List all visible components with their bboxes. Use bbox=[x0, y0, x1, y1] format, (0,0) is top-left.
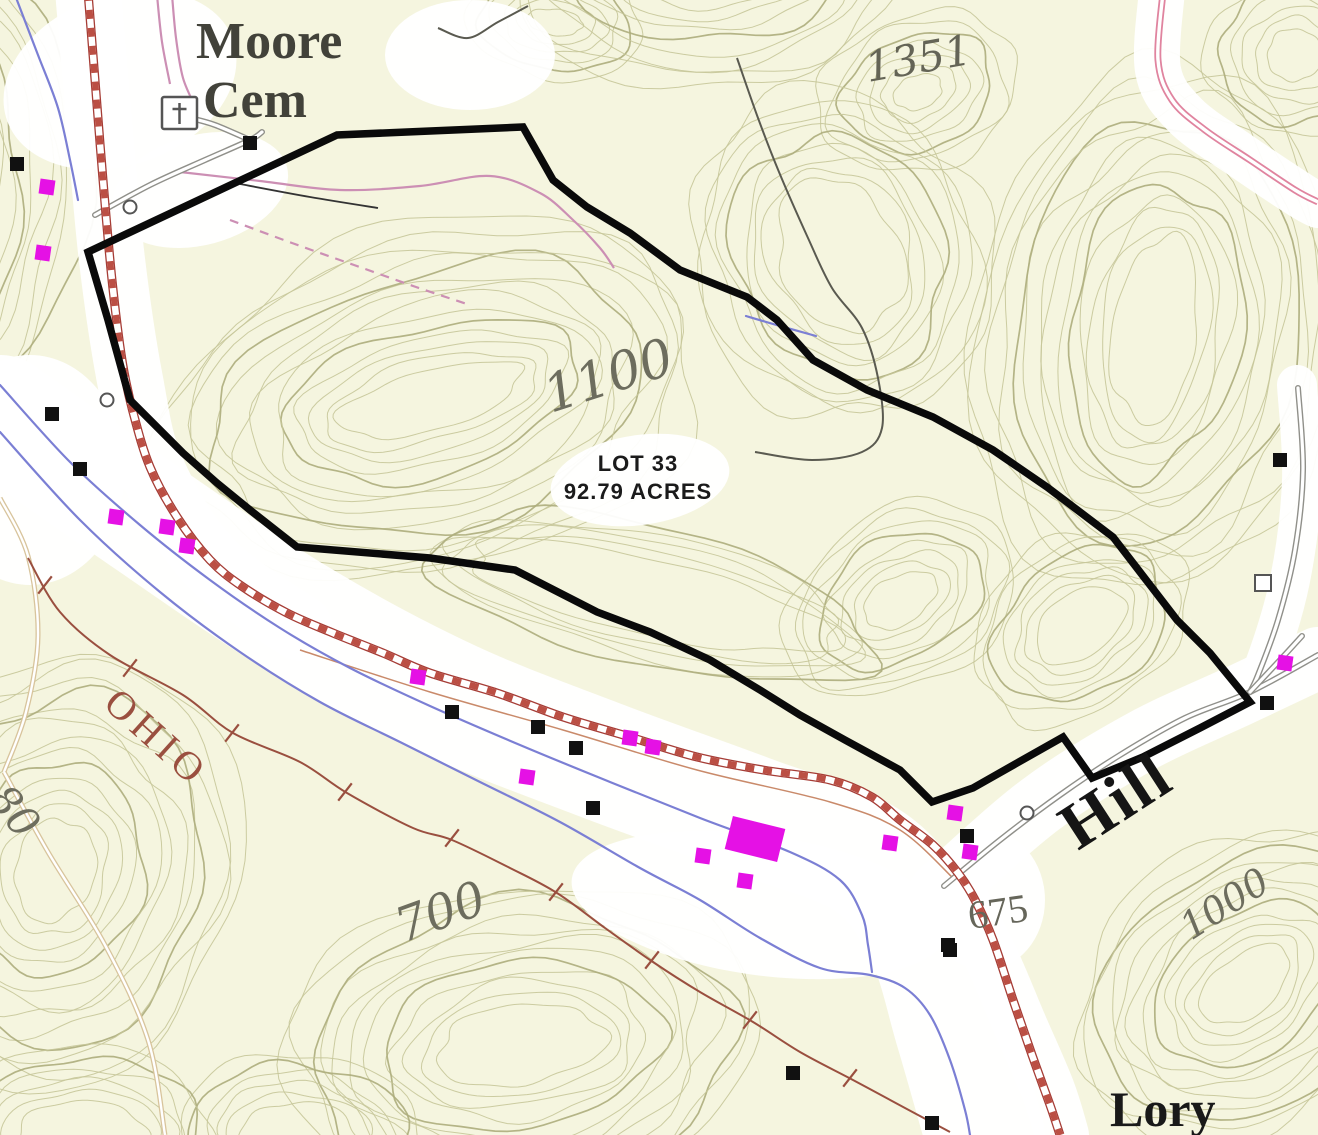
building-magenta bbox=[962, 844, 979, 861]
well-spring-symbol bbox=[1021, 807, 1034, 820]
building-black bbox=[531, 720, 545, 734]
label-spot-675: 675 bbox=[965, 885, 1031, 938]
building-magenta bbox=[35, 245, 52, 262]
building-magenta bbox=[519, 769, 536, 786]
building-magenta bbox=[410, 669, 427, 686]
label-moore-cem-2: Cem bbox=[203, 72, 307, 129]
building-outlined bbox=[1255, 575, 1271, 591]
building-magenta bbox=[108, 509, 125, 526]
building-black bbox=[243, 136, 257, 150]
building-black bbox=[786, 1066, 800, 1080]
building-black bbox=[10, 157, 24, 171]
well-spring-symbol bbox=[101, 394, 114, 407]
building-magenta bbox=[947, 805, 964, 822]
label-lory: Lory bbox=[1110, 1081, 1216, 1135]
building-black bbox=[1260, 696, 1274, 710]
building-black bbox=[73, 462, 87, 476]
building-magenta bbox=[622, 730, 639, 747]
building-magenta bbox=[39, 179, 56, 196]
building-magenta bbox=[645, 739, 662, 756]
building-black bbox=[960, 829, 974, 843]
building-magenta bbox=[1277, 655, 1294, 672]
building-magenta bbox=[737, 873, 754, 890]
well-spring-symbol bbox=[124, 201, 137, 214]
building-black bbox=[445, 705, 459, 719]
building-magenta bbox=[179, 538, 196, 555]
map-viewport[interactable]: Moore Cem 1351 1100 LOT 33 92.79 ACRES O… bbox=[0, 0, 1318, 1135]
building-magenta bbox=[882, 835, 899, 852]
building-black bbox=[45, 407, 59, 421]
building-black bbox=[1273, 453, 1287, 467]
label-lot-acreage: 92.79 ACRES bbox=[564, 479, 712, 504]
building-black bbox=[925, 1116, 939, 1130]
building-black bbox=[941, 938, 955, 952]
label-moore-cem: Moore bbox=[196, 13, 342, 70]
valley-white-area bbox=[385, 0, 555, 110]
label-lot-number: LOT 33 bbox=[598, 451, 679, 476]
building-magenta bbox=[695, 848, 712, 865]
topo-map[interactable]: Moore Cem 1351 1100 LOT 33 92.79 ACRES O… bbox=[0, 0, 1318, 1135]
building-black bbox=[586, 801, 600, 815]
building-black bbox=[569, 741, 583, 755]
building-magenta bbox=[159, 519, 176, 536]
